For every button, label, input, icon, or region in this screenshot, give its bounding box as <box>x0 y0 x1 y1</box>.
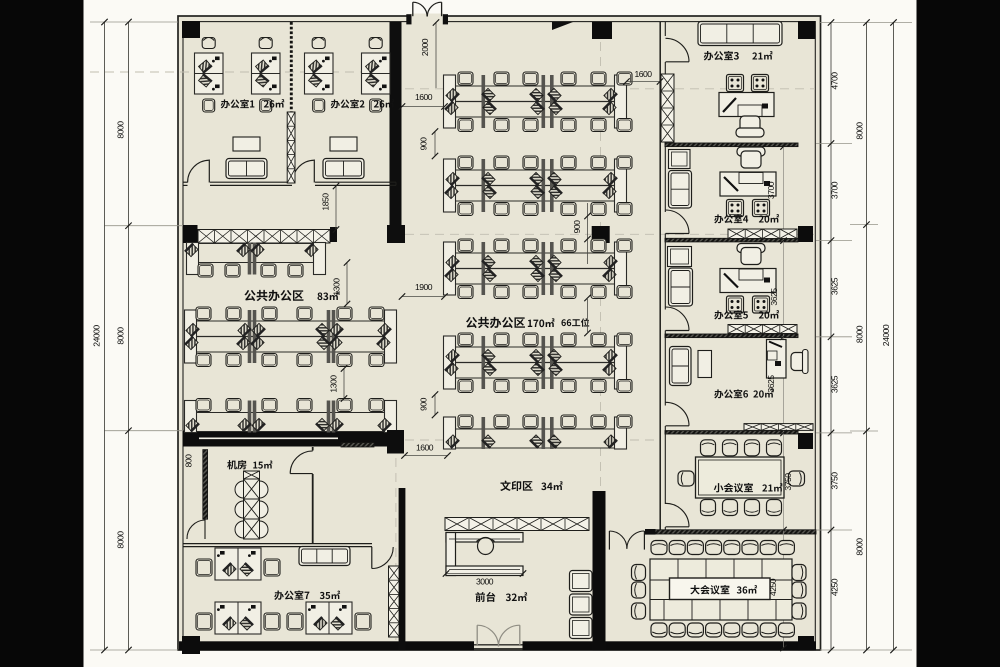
svg-text:8000: 8000 <box>116 327 126 345</box>
svg-text:4250: 4250 <box>830 578 840 596</box>
svg-text:900: 900 <box>572 220 582 234</box>
svg-text:3625: 3625 <box>830 375 840 393</box>
svg-text:3750: 3750 <box>783 473 793 491</box>
svg-text:3625: 3625 <box>769 288 779 306</box>
svg-text:800: 800 <box>184 454 194 468</box>
svg-text:8000: 8000 <box>116 121 126 139</box>
svg-text:900: 900 <box>419 397 429 411</box>
svg-text:1850: 1850 <box>321 193 331 211</box>
svg-text:3700: 3700 <box>766 181 776 199</box>
svg-text:8000: 8000 <box>855 325 865 343</box>
svg-text:3000: 3000 <box>476 577 494 587</box>
svg-text:3625: 3625 <box>766 375 776 393</box>
svg-text:24000: 24000 <box>881 324 891 346</box>
svg-text:1600: 1600 <box>634 69 652 79</box>
svg-text:3625: 3625 <box>830 277 840 295</box>
svg-text:4250: 4250 <box>768 578 778 596</box>
svg-text:4700: 4700 <box>830 72 840 90</box>
svg-text:900: 900 <box>419 137 429 151</box>
svg-text:3700: 3700 <box>830 181 840 199</box>
svg-text:1600: 1600 <box>416 443 434 453</box>
svg-text:24000: 24000 <box>92 325 102 347</box>
svg-text:1300: 1300 <box>332 278 342 296</box>
svg-text:3750: 3750 <box>830 472 840 490</box>
svg-text:2000: 2000 <box>420 38 430 56</box>
svg-text:1600: 1600 <box>415 92 433 102</box>
svg-text:1300: 1300 <box>329 375 339 393</box>
svg-text:1900: 1900 <box>415 282 433 292</box>
svg-text:8000: 8000 <box>855 538 865 556</box>
svg-text:8000: 8000 <box>855 122 865 140</box>
svg-text:8000: 8000 <box>116 531 126 549</box>
